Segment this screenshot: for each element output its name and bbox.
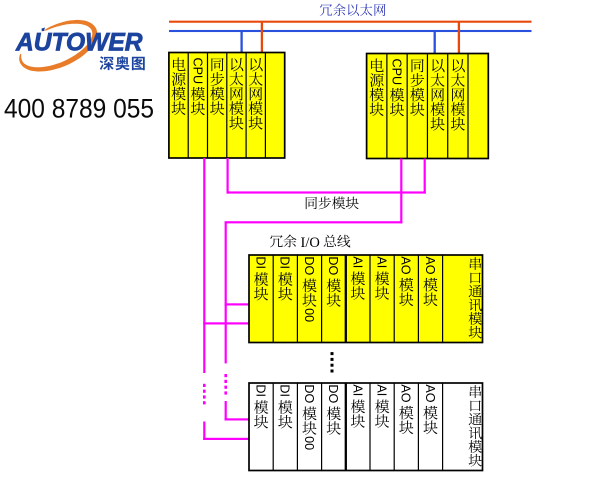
svg-text:I/O: I/O (301, 235, 320, 251)
svg-text:CPU: CPU (389, 59, 403, 86)
svg-text:AI: AI (350, 256, 364, 268)
svg-text:400 8789 055: 400 8789 055 (4, 92, 154, 123)
svg-text:DO: DO (326, 256, 340, 275)
svg-text:DI: DI (254, 256, 268, 269)
svg-text:AI: AI (375, 384, 389, 396)
svg-text:AUTOWER: AUTOWER (15, 29, 142, 57)
svg-text:AO: AO (399, 256, 413, 274)
svg-text:DO: DO (302, 384, 316, 403)
svg-text:DI: DI (254, 384, 268, 397)
svg-text:00: 00 (302, 436, 316, 450)
svg-text:AI: AI (375, 256, 389, 268)
svg-text:AO: AO (399, 384, 413, 402)
svg-text:00: 00 (302, 308, 316, 322)
svg-text:DO: DO (302, 256, 316, 275)
svg-text:DI: DI (278, 256, 292, 269)
svg-text:DI: DI (278, 384, 292, 397)
svg-text:CPU: CPU (190, 58, 204, 85)
svg-text:AO: AO (423, 384, 437, 402)
svg-text:DO: DO (326, 384, 340, 403)
svg-text:AI: AI (350, 384, 364, 396)
svg-text:AO: AO (423, 256, 437, 274)
